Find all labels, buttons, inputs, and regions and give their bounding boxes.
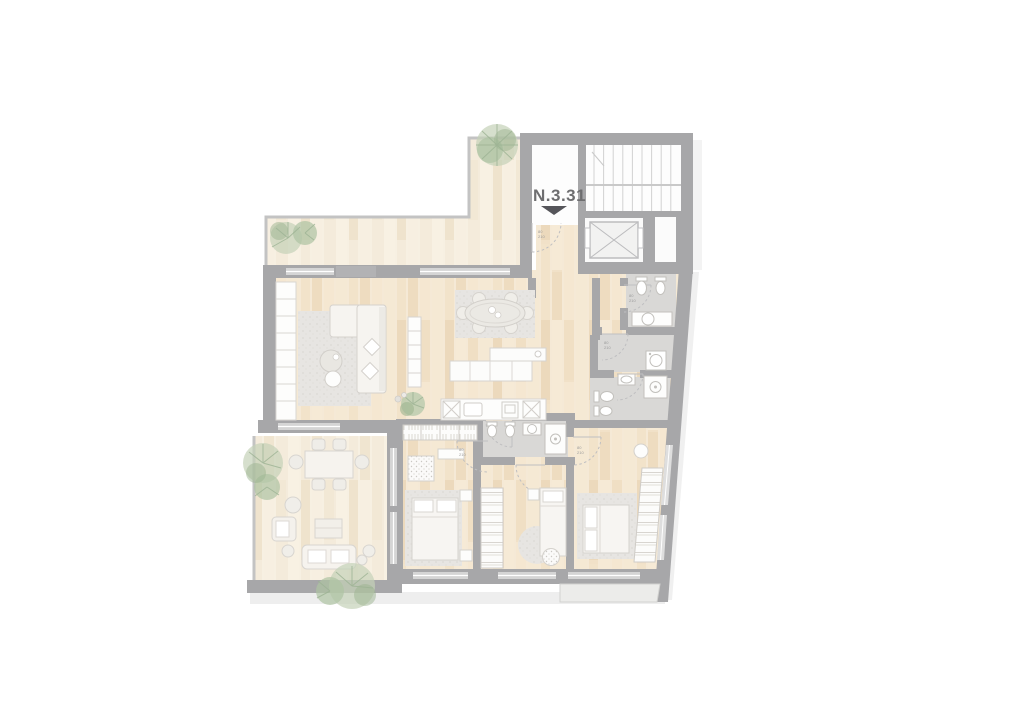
outdoor-chair — [333, 439, 346, 450]
toilet-icon — [488, 425, 497, 437]
west-core-wall — [520, 133, 532, 278]
unit-number-label: N.3.31 — [533, 186, 586, 205]
outdoor-chair — [289, 455, 303, 469]
side-table — [357, 555, 367, 565]
wall-pier — [336, 266, 376, 277]
outdoor-chair — [355, 455, 369, 469]
svg-text:210: 210 — [629, 298, 636, 303]
kitchen-island — [450, 361, 532, 381]
outdoor-table — [305, 451, 353, 478]
svg-text:210: 210 — [459, 452, 466, 457]
corridor — [403, 425, 477, 440]
round-sink-icon — [642, 313, 654, 325]
pillow — [585, 507, 597, 528]
nightstand — [528, 489, 539, 500]
tv-unit — [408, 317, 421, 387]
master-north-wall — [566, 420, 670, 428]
bidet-icon — [655, 277, 666, 281]
bedroom-divider-east — [566, 463, 574, 572]
toilet-icon — [636, 277, 647, 281]
pouf — [282, 545, 294, 557]
south-balcony-ledge — [560, 584, 660, 602]
floor-plan-drawing: N.3.31 80 210 80 210 80 210 80 210 80 21… — [0, 0, 1024, 724]
outdoor-chair — [312, 439, 325, 450]
bar-sink — [535, 351, 541, 357]
nightstand — [460, 490, 472, 501]
svg-text:210: 210 — [604, 345, 611, 350]
stool — [634, 444, 648, 458]
side-table — [363, 545, 375, 557]
bidet-icon — [600, 407, 612, 416]
nightstand — [460, 550, 472, 561]
core-top-wall — [520, 133, 693, 145]
cushion — [331, 550, 349, 563]
toilet-icon — [601, 392, 614, 402]
dining-area — [455, 290, 535, 338]
pebble — [395, 396, 401, 402]
bookshelf — [276, 282, 296, 420]
kitchen-counter — [441, 399, 546, 420]
laundry-room — [646, 351, 666, 370]
svg-text:210: 210 — [538, 234, 545, 239]
wardrobe — [481, 488, 503, 568]
core-right-wall — [681, 133, 693, 270]
potted-plant — [476, 124, 518, 166]
bidet-icon — [506, 425, 515, 437]
dresser — [408, 456, 434, 481]
pouf — [543, 549, 560, 566]
outdoor-chair — [333, 479, 346, 490]
cushion — [308, 550, 326, 563]
outdoor-chair — [312, 479, 325, 490]
bedroom-divider-west — [473, 441, 481, 572]
svg-text:210: 210 — [577, 450, 584, 455]
pouf — [285, 497, 301, 513]
coffee-table — [320, 350, 342, 372]
pillow — [585, 530, 597, 551]
side-table — [325, 371, 341, 387]
pebble — [402, 393, 407, 398]
pillow — [437, 500, 456, 512]
west-wall — [263, 265, 276, 433]
round-sink-icon — [528, 425, 537, 434]
pillow — [543, 491, 563, 502]
kitchen-sink — [464, 403, 482, 416]
floor-plan-canvas: N.3.31 80 210 80 210 80 210 80 210 80 21… — [0, 0, 1024, 724]
shaft-side-room — [655, 217, 676, 262]
potted-plant — [243, 443, 283, 500]
pillow — [414, 500, 433, 512]
